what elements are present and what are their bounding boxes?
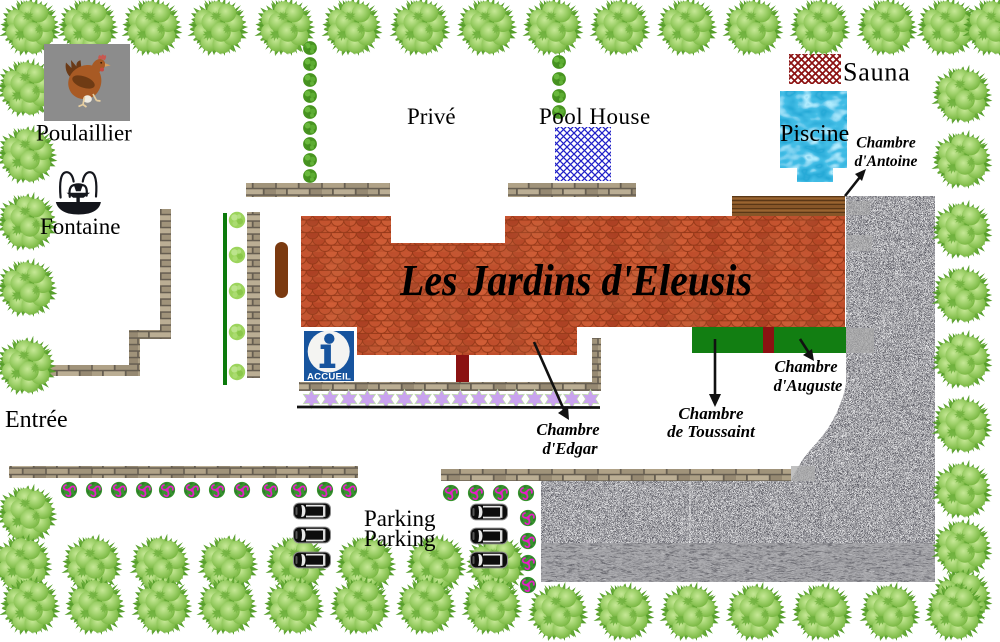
svg-text:Poulaillier: Poulaillier (36, 121, 132, 146)
svg-text:de Toussaint: de Toussaint (667, 422, 756, 441)
svg-text:Piscine: Piscine (780, 121, 849, 147)
svg-text:Sauna: Sauna (843, 58, 911, 87)
svg-text:Chambre: Chambre (856, 135, 916, 152)
svg-text:Entrée: Entrée (5, 407, 68, 433)
svg-text:Fontaine: Fontaine (40, 214, 121, 239)
svg-text:Les Jardins d'Eleusis: Les Jardins d'Eleusis (399, 256, 752, 305)
svg-text:Parking: Parking (364, 526, 436, 551)
svg-text:Chambre: Chambre (774, 357, 837, 376)
svg-text:ACCUEIL: ACCUEIL (307, 372, 351, 383)
svg-text:d'Edgar: d'Edgar (542, 439, 598, 458)
svg-text:Pool House: Pool House (539, 104, 651, 129)
svg-text:Privé: Privé (407, 104, 456, 129)
svg-text:Chambre: Chambre (678, 404, 744, 423)
svg-text:d'Antoine: d'Antoine (855, 153, 918, 170)
svg-text:Chambre: Chambre (536, 420, 599, 439)
svg-text:d'Auguste: d'Auguste (774, 376, 843, 395)
